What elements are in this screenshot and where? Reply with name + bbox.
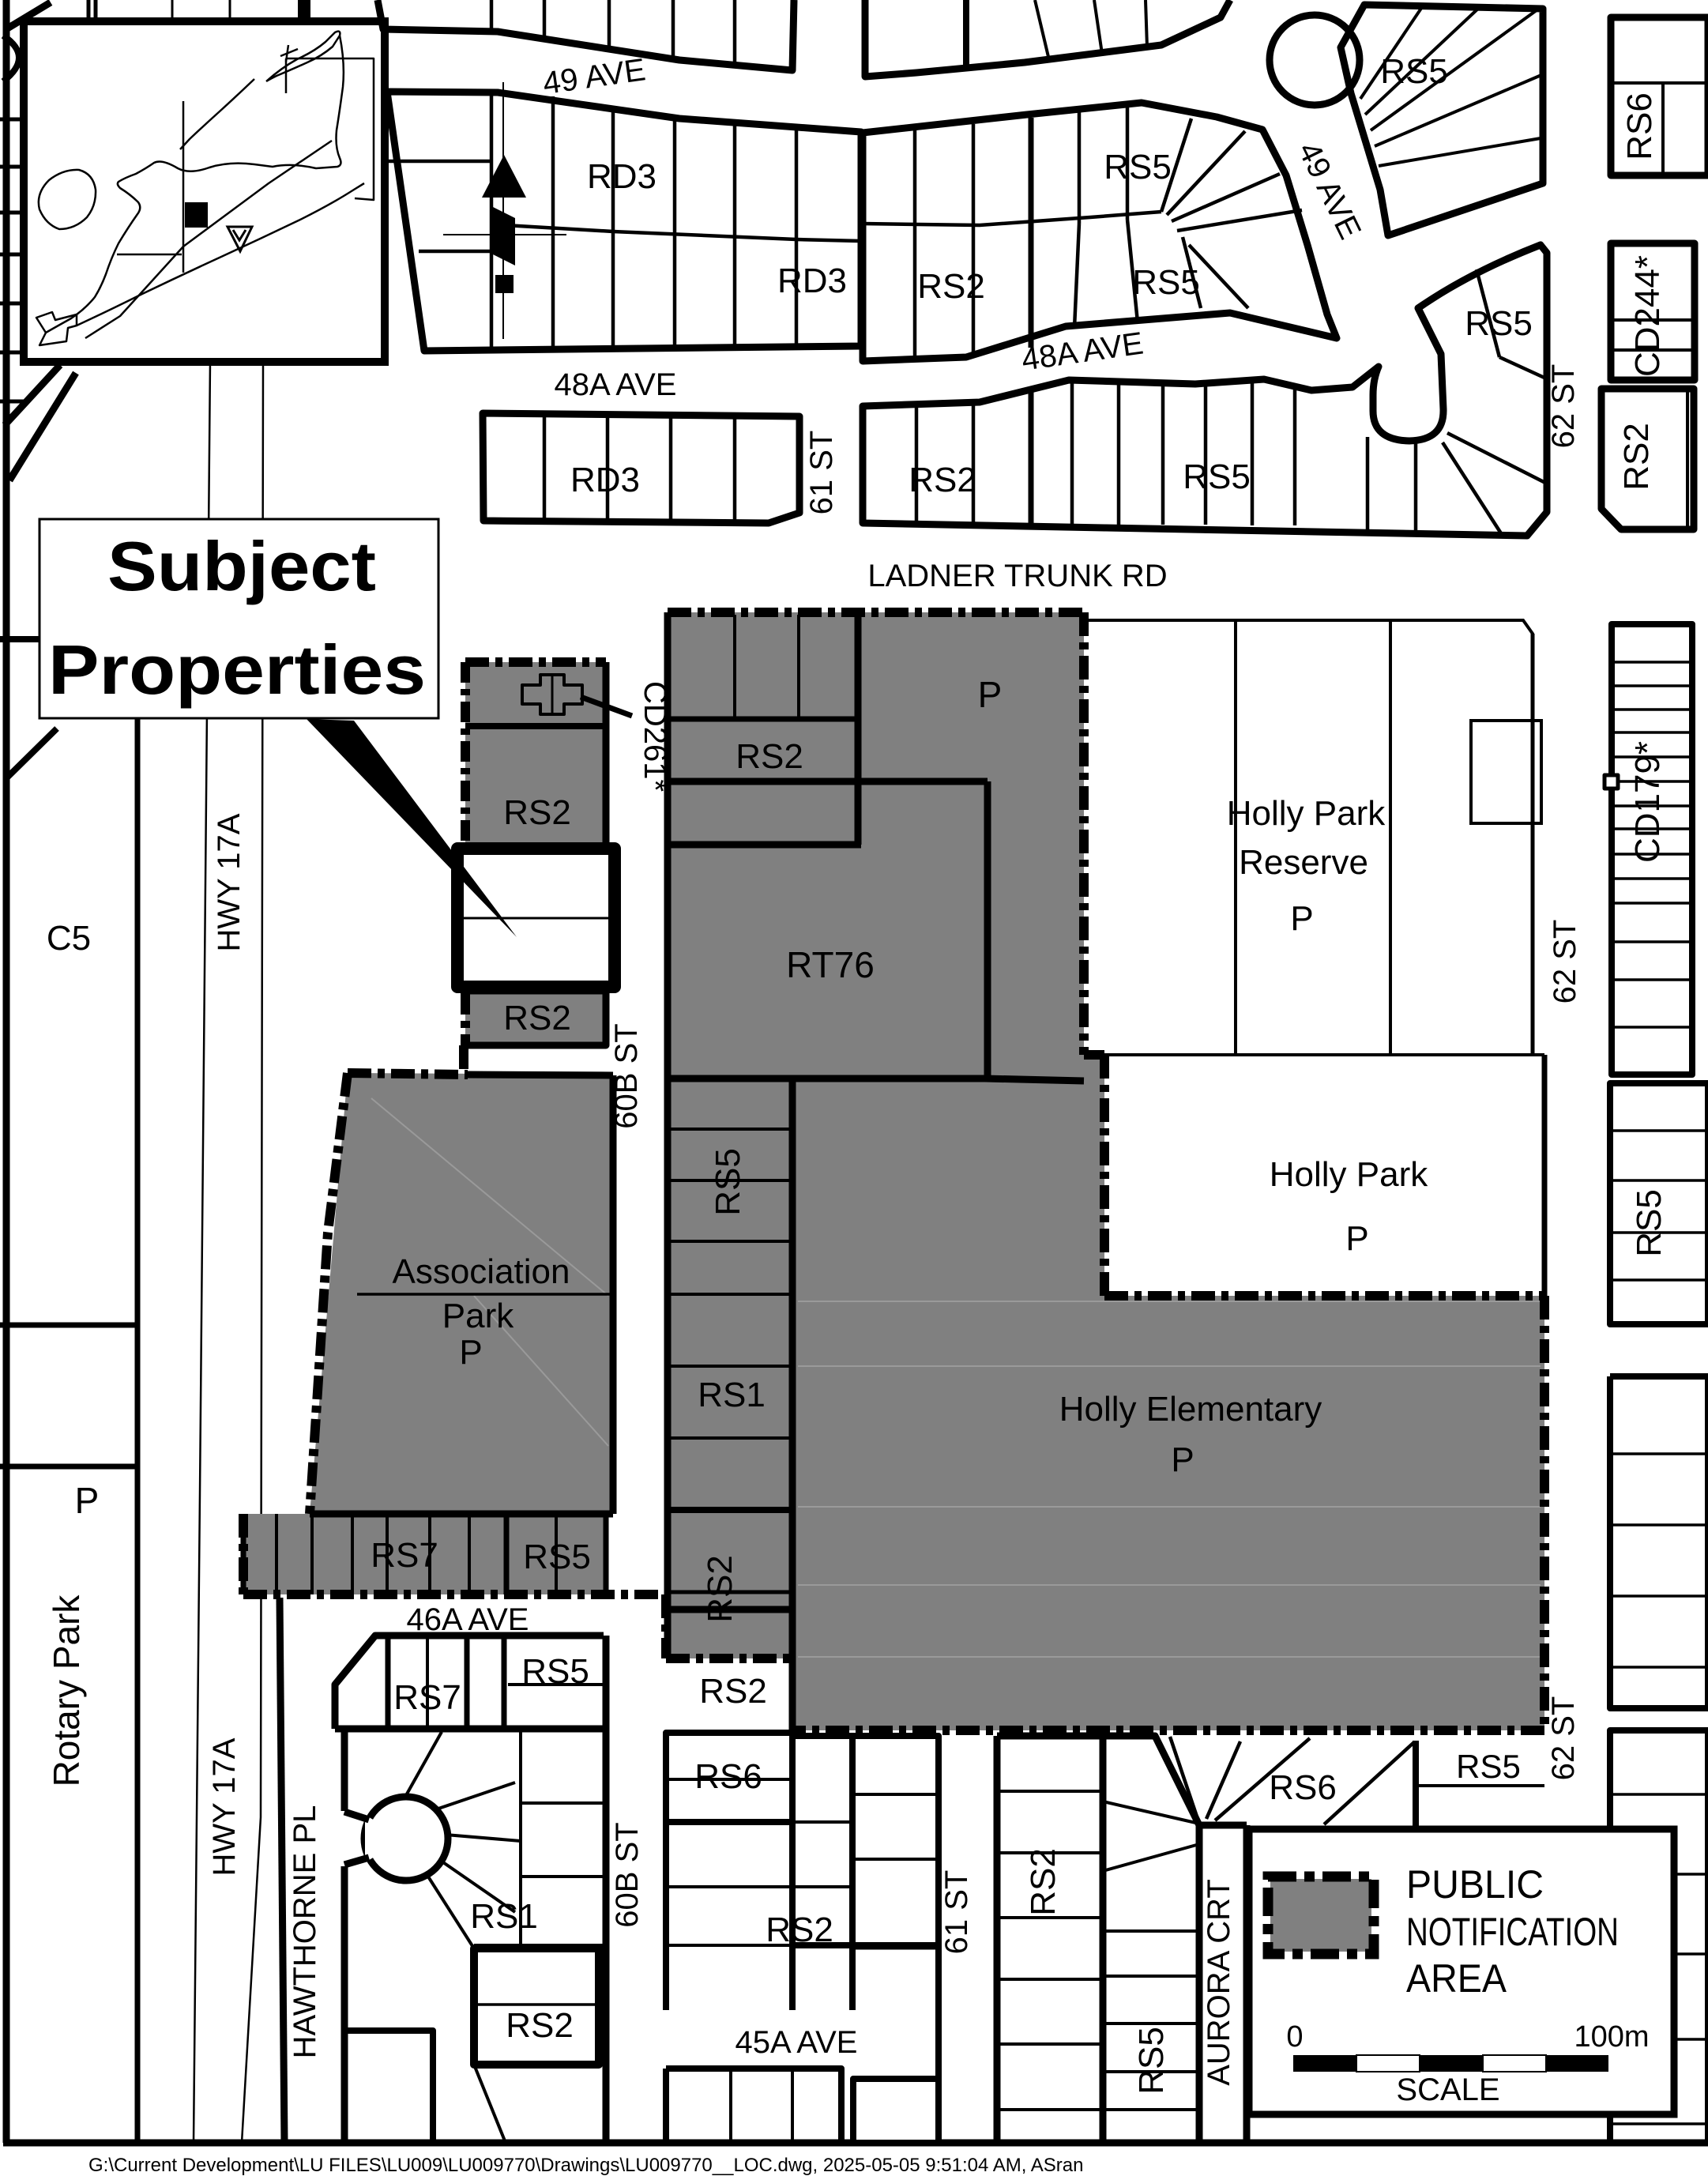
svg-text:RS1: RS1 — [698, 1376, 766, 1414]
svg-text:CD261*: CD261* — [638, 681, 672, 792]
svg-text:RS5: RS5 — [1380, 52, 1448, 91]
svg-text:RS2: RS2 — [1024, 1848, 1063, 1916]
svg-text:0: 0 — [1286, 2020, 1303, 2054]
svg-text:RS5: RS5 — [1132, 2027, 1171, 2095]
svg-text:RS5: RS5 — [1465, 304, 1533, 343]
svg-text:RS5: RS5 — [1183, 457, 1251, 496]
svg-text:P: P — [1290, 899, 1313, 938]
svg-text:Properties: Properties — [48, 631, 426, 709]
svg-text:P: P — [1171, 1440, 1194, 1479]
svg-text:RD3: RD3 — [777, 262, 847, 300]
svg-text:RS5: RS5 — [1132, 263, 1200, 302]
svg-text:RS2: RS2 — [701, 1555, 739, 1623]
svg-text:RS2: RS2 — [503, 793, 571, 832]
svg-text:60B ST: 60B ST — [609, 1023, 644, 1128]
svg-text:RS7: RS7 — [393, 1678, 461, 1717]
svg-text:Holly Elementary: Holly Elementary — [1059, 1390, 1322, 1429]
svg-text:RS5: RS5 — [1456, 1748, 1521, 1785]
svg-text:NOTIFICATION: NOTIFICATION — [1406, 1910, 1619, 1954]
svg-text:RS7: RS7 — [371, 1536, 438, 1575]
svg-text:RS2: RS2 — [735, 737, 803, 776]
svg-text:46A AVE: 46A AVE — [407, 1602, 529, 1637]
svg-text:61 ST: 61 ST — [939, 1870, 974, 1955]
svg-text:P: P — [1345, 1219, 1368, 1258]
svg-text:RS5: RS5 — [1630, 1189, 1668, 1257]
svg-text:RS2: RS2 — [909, 461, 976, 499]
svg-text:Rotary Park: Rotary Park — [46, 1594, 87, 1787]
svg-text:AREA: AREA — [1406, 1956, 1507, 2001]
svg-text:P: P — [459, 1333, 482, 1372]
svg-text:Park: Park — [442, 1297, 514, 1335]
svg-text:Holly Park: Holly Park — [1227, 794, 1386, 833]
svg-text:P: P — [978, 674, 1003, 715]
svg-text:Holly Park: Holly Park — [1270, 1155, 1428, 1194]
svg-text:RS2: RS2 — [917, 267, 985, 306]
svg-text:RS6: RS6 — [694, 1757, 762, 1796]
svg-text:RS1: RS1 — [470, 1897, 538, 1936]
svg-text:62 ST: 62 ST — [1546, 364, 1581, 449]
svg-text:RS6: RS6 — [1620, 92, 1659, 160]
svg-text:PUBLIC: PUBLIC — [1406, 1862, 1544, 1907]
svg-text:RS5: RS5 — [709, 1148, 747, 1216]
svg-text:RS2: RS2 — [1617, 423, 1656, 491]
svg-text:Reserve: Reserve — [1239, 843, 1368, 882]
svg-text:RS5: RS5 — [521, 1652, 589, 1691]
svg-text:61 ST: 61 ST — [804, 431, 839, 515]
svg-text:62 ST: 62 ST — [1548, 920, 1582, 1004]
svg-text:100m: 100m — [1574, 2020, 1649, 2054]
svg-text:RS2: RS2 — [503, 999, 571, 1037]
svg-text:G:\Current Development\LU FILE: G:\Current Development\LU FILES\LU009\LU… — [88, 2155, 1083, 2176]
svg-text:RD3: RD3 — [570, 461, 640, 499]
svg-text:CD179*: CD179* — [1628, 741, 1667, 863]
svg-text:CD244*: CD244* — [1628, 255, 1667, 377]
svg-text:RS2: RS2 — [506, 2006, 574, 2045]
svg-text:45A AVE: 45A AVE — [735, 2025, 858, 2060]
svg-text:P: P — [75, 1480, 100, 1521]
svg-text:RT76: RT76 — [786, 944, 875, 985]
svg-text:RS2: RS2 — [766, 1911, 833, 1949]
svg-text:RS6: RS6 — [1269, 1768, 1337, 1807]
svg-text:60B ST: 60B ST — [610, 1822, 645, 1927]
svg-text:48A AVE: 48A AVE — [555, 367, 677, 402]
svg-text:RS2: RS2 — [699, 1672, 767, 1711]
svg-text:62 ST: 62 ST — [1546, 1696, 1581, 1781]
svg-text:LADNER TRUNK RD: LADNER TRUNK RD — [867, 559, 1167, 593]
svg-text:HWY 17A: HWY 17A — [207, 1737, 242, 1876]
svg-text:Subject: Subject — [107, 527, 376, 605]
svg-text:Association: Association — [392, 1252, 570, 1291]
svg-text:SCALE: SCALE — [1396, 2072, 1499, 2107]
svg-text:RS5: RS5 — [1104, 148, 1172, 186]
svg-text:C5: C5 — [47, 919, 91, 958]
svg-text:RD3: RD3 — [587, 157, 656, 196]
svg-text:HWY 17A: HWY 17A — [212, 813, 246, 951]
svg-text:AURORA CRT: AURORA CRT — [1202, 1879, 1236, 2086]
svg-text:RS5: RS5 — [523, 1538, 591, 1576]
svg-text:HAWTHORNE PL: HAWTHORNE PL — [288, 1805, 322, 2059]
